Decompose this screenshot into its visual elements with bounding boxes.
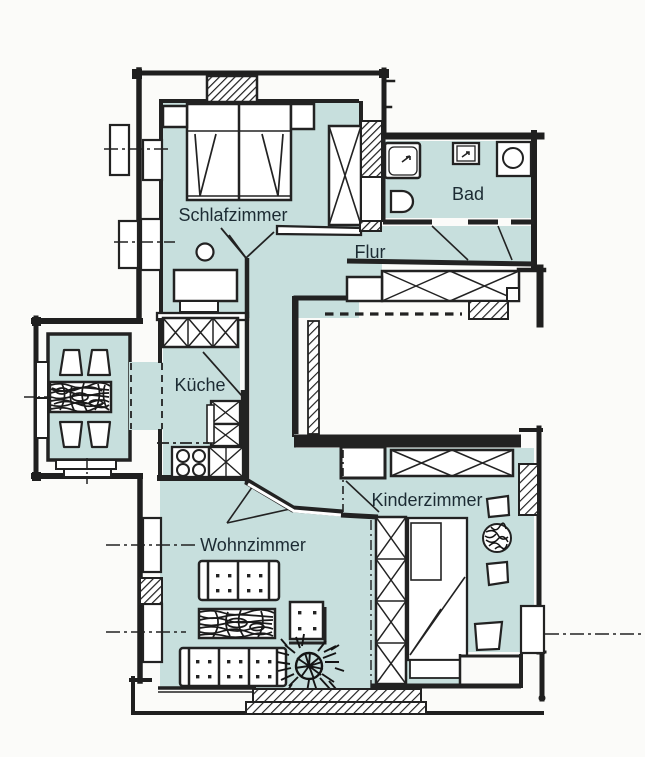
svg-text:Schlafzimmer: Schlafzimmer bbox=[178, 205, 287, 225]
svg-text:Küche: Küche bbox=[174, 375, 225, 395]
svg-text:Kinderzimmer: Kinderzimmer bbox=[371, 490, 482, 510]
svg-text:Bad: Bad bbox=[452, 184, 484, 204]
svg-text:Wohnzimmer: Wohnzimmer bbox=[200, 535, 306, 555]
